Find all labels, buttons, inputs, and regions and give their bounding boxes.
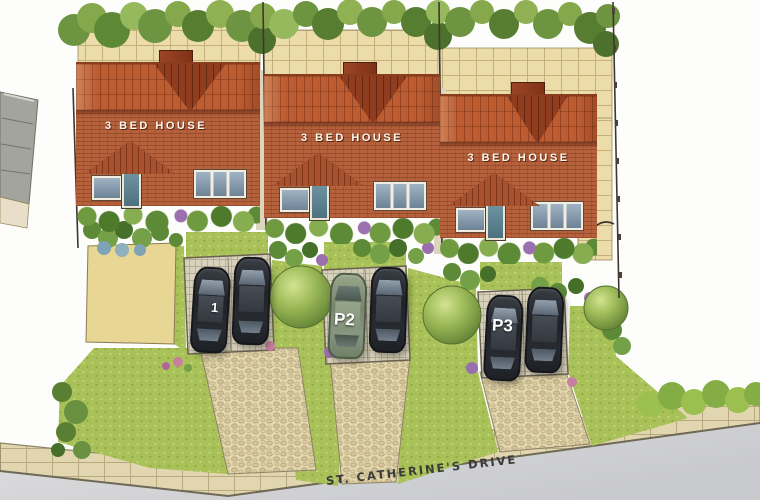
front-shrubs <box>264 218 440 244</box>
front-door <box>310 184 329 220</box>
porch-roof <box>448 172 540 206</box>
parked-car-1b <box>231 256 271 345</box>
front-shrubs <box>76 206 260 232</box>
parked-car-3a <box>483 294 524 382</box>
front-door <box>122 172 141 208</box>
parked-car-2b <box>369 266 409 353</box>
parked-car-3b <box>524 286 565 374</box>
roof-gable <box>150 64 231 112</box>
front-door <box>486 204 505 240</box>
window <box>92 176 122 200</box>
house-3-wall: 3 BED HOUSE <box>440 142 597 238</box>
house-1-label: 3 BED HOUSE <box>64 120 248 132</box>
parking-space-3-label: P3 <box>491 315 513 336</box>
house-1: 3 BED HOUSE <box>76 62 260 232</box>
house-2: 3 BED HOUSE <box>264 74 440 244</box>
window <box>194 170 246 198</box>
window <box>531 202 583 230</box>
hardstanding <box>86 243 176 344</box>
neighbor-roof <box>0 92 38 228</box>
site-plan-illustration: 3 BED HOUSE 3 BED HOUSE 3 BED HOUSE <box>0 0 760 500</box>
house-2-wall: 3 BED HOUSE <box>264 122 440 218</box>
house-1-wall: 3 BED HOUSE <box>76 110 260 206</box>
window <box>280 188 310 212</box>
house-3-label: 3 BED HOUSE <box>440 152 597 164</box>
window <box>456 208 486 232</box>
porch-roof <box>272 152 364 186</box>
tree-2 <box>423 286 481 344</box>
tree-1 <box>270 266 332 328</box>
porch-roof <box>84 140 176 174</box>
roof-gable <box>503 96 572 144</box>
roof-gable <box>334 76 411 124</box>
house-1-roof <box>76 62 260 115</box>
house-2-roof <box>264 74 440 127</box>
window <box>374 182 426 210</box>
tree-3 <box>584 286 628 330</box>
front-shrubs <box>440 238 597 264</box>
parking-space-2-label: P2 <box>333 309 355 330</box>
house-3: 3 BED HOUSE <box>440 94 597 264</box>
house-2-label: 3 BED HOUSE <box>264 132 440 144</box>
house-3-roof <box>440 94 597 147</box>
parking-space-1-label: 1 <box>210 300 218 315</box>
